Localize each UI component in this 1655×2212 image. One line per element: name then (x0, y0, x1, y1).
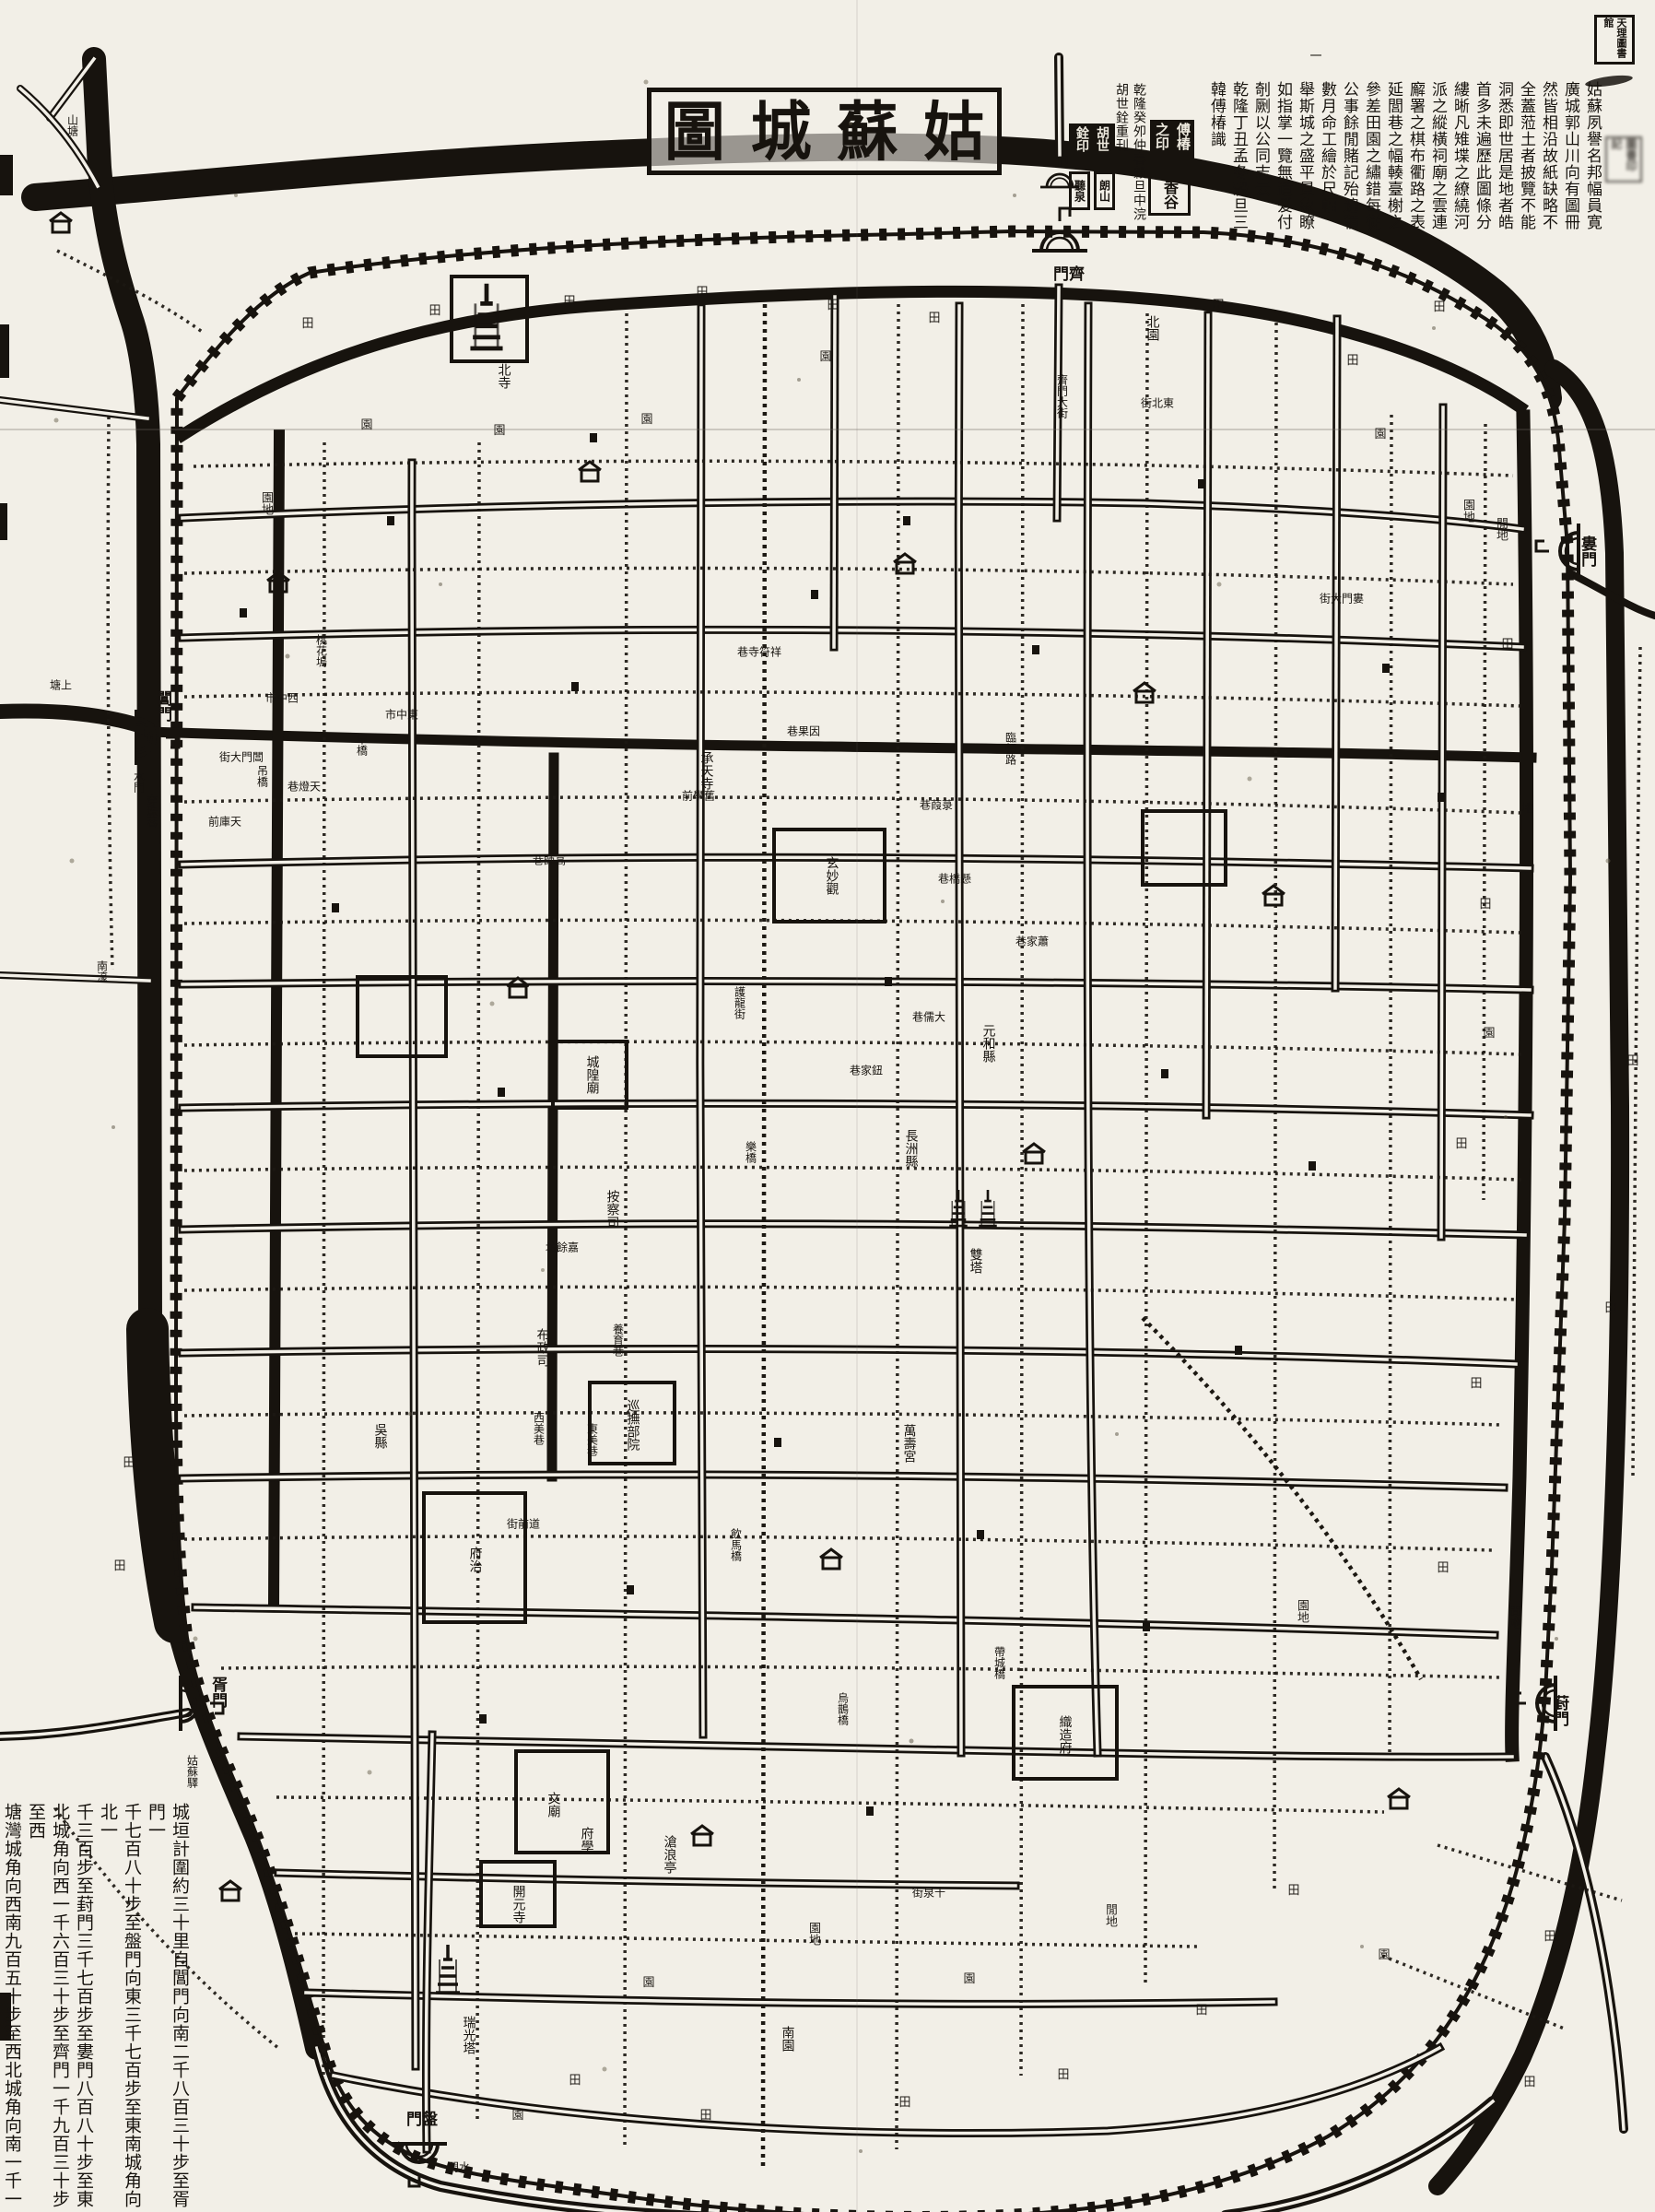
map-label: 元和縣 (980, 1024, 994, 1063)
map-label: 園地 (1461, 499, 1473, 523)
map-label: 吊橋 (256, 765, 268, 787)
map-label: 巷家蕭 (1015, 936, 1049, 948)
preface-column: 公事餘閒賭記殆遍積 (1338, 81, 1360, 258)
map-label: 巷儒大 (912, 1012, 945, 1024)
map-label: 玄妙觀 (824, 856, 838, 895)
map-label: 織造府 (1057, 1715, 1071, 1754)
map-label: 閒地 (1494, 517, 1507, 541)
preface-column: 姑蘇夙譽名邦幅員寛 (1581, 81, 1603, 258)
paper-speckle (0, 0, 2, 2)
map-label: 南濠 (96, 960, 108, 982)
map-label: 田 (1470, 1378, 1482, 1391)
map-label: 養育巷 (612, 1324, 624, 1357)
map-label: 山塘 (66, 114, 78, 136)
blurred-accession-seal: 圖書印記 (1605, 136, 1642, 182)
map-label: 滄浪亭 (662, 1835, 675, 1874)
preface-column: 派之縱橫祠廟之雲連 (1426, 81, 1449, 258)
map-label: 前學舊 (682, 791, 715, 803)
map-label: 護龍街 (734, 986, 745, 1019)
map-label: 塘上 (50, 680, 72, 692)
map-label: 田 (1212, 300, 1224, 312)
map-label: 樂橋 (745, 1141, 757, 1163)
map-label: 田 (898, 2097, 910, 2110)
map-label: 吳縣 (372, 1423, 386, 1449)
preface-column: 乾隆丁丑孟冬穀旦三 (1227, 81, 1250, 258)
map-label: 園 (1378, 1949, 1390, 1962)
map-label: 街大門婁 (1320, 594, 1364, 606)
map-label: 水門 (133, 771, 145, 793)
preface-column: 廨署之棋布衢路之表 (1404, 81, 1426, 258)
map-label: 田 (1195, 2005, 1207, 2018)
title-char: 圖 (664, 100, 725, 163)
map-label: 雙塔 (968, 1248, 981, 1274)
map-label: 瑞光塔 (461, 2016, 475, 2054)
map-label: 布政司 (534, 1328, 548, 1367)
map-label: 田 (563, 296, 575, 309)
preface-column: 剞劂以公同志云 (1250, 81, 1272, 258)
map-label: 市中東 (385, 710, 418, 722)
preface-column: 全蓋蒞土者披覽不能 (1515, 81, 1537, 258)
title-char: 姑 (923, 100, 984, 163)
map-label: 坊餘嘉 (546, 1242, 579, 1254)
map-label: 田 (1455, 1138, 1467, 1151)
measurement-column: 北城角向西一千六百三十步至齊門一千九百三十步至西 (24, 1803, 72, 2212)
map-label: 門齊 (1053, 266, 1085, 283)
map-label: 閶門 (154, 690, 170, 722)
map-label: 臨頓路 (1004, 732, 1016, 765)
preface-column: 洞悉即世居是地者皓 (1493, 81, 1515, 258)
map-label: 園 (1483, 1028, 1495, 1041)
map-label: 田 (1437, 1562, 1449, 1575)
preface-column: 延閭巷之幅輳臺榭之 (1382, 81, 1404, 258)
map-label: 園 (819, 351, 831, 364)
map-label: 一 (1309, 51, 1321, 64)
map-label: 府治 (467, 1547, 481, 1572)
measurement-column: 城垣計圍約三十里自閶門向南二千八百三十步至胥門一 (144, 1803, 192, 2212)
map-label: 長洲縣 (903, 1129, 917, 1168)
map-label: 田 (428, 305, 440, 318)
map-label: 胥門 (209, 1677, 226, 1708)
map-label: 萬壽宮 (901, 1424, 915, 1463)
map-label: 門盤 (406, 2112, 438, 2128)
map-label: 園 (511, 2110, 523, 2123)
map-label: 巷寺符祥 (737, 647, 781, 659)
preface-column: 廣城郭山川向有圖冊 (1559, 81, 1581, 258)
map-label: 巡撫部院 (625, 1399, 639, 1451)
map-label: 門水 (448, 2162, 470, 2174)
map-label: 巷燈天 (288, 782, 321, 794)
map-label: 齊門大街 (1056, 374, 1068, 418)
preface-text: 姑蘇夙譽名邦幅員寛廣城郭山川向有圖冊然皆相沿故紙缺略不全蓋蒞土者披覽不能洞悉即世… (1202, 81, 1603, 258)
map-label: 地 (1521, 803, 1533, 816)
map-label: 園 (963, 1973, 975, 1986)
map-label: 田 (1433, 301, 1445, 314)
measurement-column: 千三百步至葑門三千七百步至婁門八百八十步至東 (72, 1803, 96, 2212)
map-label: 穿珠巷 (146, 794, 158, 828)
publisher-name-seal: 胡世銓印 (1069, 124, 1115, 166)
map-label: 西美巷 (533, 1412, 545, 1445)
measurement-column: 千七百八十步至盤門向東三千七百步至東南城角向北一 (96, 1803, 144, 2212)
map-label: 帶城橋 (993, 1646, 1005, 1679)
map-label: 田 (1346, 355, 1358, 368)
map-label: 園地 (1295, 1599, 1308, 1623)
map-label: 田 (1543, 1931, 1555, 1944)
map-label: 南園 (780, 2026, 793, 2052)
map-label: 閒地 (1507, 1605, 1520, 1629)
title-char: 蘇 (837, 100, 898, 163)
map-label: 田 (1523, 2077, 1535, 2089)
map-label: 城隍廟 (584, 1055, 598, 1094)
map-label: 園 (640, 414, 652, 427)
map-label: 市中西 (265, 693, 299, 705)
map-label: 巷師高 (533, 855, 566, 867)
map-label: 桃花塢 (315, 634, 327, 667)
map-label: 街泉十 (912, 1888, 945, 1900)
map-label: 園 (1374, 429, 1386, 441)
map-label: 烏鵲橋 (837, 1692, 849, 1725)
title-box: 姑 蘇 城 圖 (647, 88, 1002, 175)
preface-column: 首多未遍歷此圖條分 (1471, 81, 1493, 258)
map-label: 田 (1479, 899, 1491, 912)
map-label: 巷家鈕 (850, 1065, 883, 1077)
map-label: 田 (696, 287, 708, 300)
map-label: 田 (1287, 1885, 1299, 1898)
map-label: 田 (928, 312, 940, 325)
map-label: 田 (113, 1560, 125, 1573)
map-label: 按察司 (604, 1190, 618, 1229)
map-label: 街北東 (1141, 398, 1174, 410)
publisher-small-seal: 聽泉 (1069, 171, 1090, 210)
measurement-note: 城垣計圍約三十里自閶門向南二千八百三十步至胥門一千七百八十步至盤門向東三千七百步… (44, 1803, 192, 2212)
map-label: 飲馬橋 (730, 1528, 742, 1561)
map-label: 前庫天 (208, 817, 241, 829)
map-label: 田 (123, 1457, 135, 1470)
library-collection-seal: 天理圖書館 (1594, 15, 1635, 65)
map-label: 北園 (1144, 315, 1158, 341)
map-label: 東美巷 (586, 1423, 598, 1456)
map-label: 田 (1057, 2069, 1069, 2082)
map-label: 府學 (579, 1827, 593, 1853)
map-label: 巷果因 (787, 726, 820, 738)
colophon-column: 乾隆癸夘仲春穀旦中浣 (1130, 83, 1147, 247)
preface-column: 然皆相沿故紙缺略不 (1537, 81, 1559, 258)
preface-column: 如指掌一覽無遺爰付 (1272, 81, 1294, 258)
map-label: 巷葭菉 (920, 800, 953, 812)
author-name-seal: 傅椿之印 (1150, 120, 1194, 166)
map-label: 文廟 (546, 1792, 559, 1818)
map-label: 園 (642, 1977, 654, 1990)
map-label: 承天寺 (698, 751, 712, 790)
map-label: 田 (827, 300, 839, 312)
publisher-small-seal: 朗山 (1094, 171, 1115, 210)
preface-column: 縷晰凡雉堞之繚繞河 (1449, 81, 1471, 258)
preface-column: 韓傅椿識 (1205, 81, 1227, 258)
map-label: 巷橋懸 (938, 874, 971, 886)
preface-column: 數月命工繪於尺幅 (1316, 81, 1338, 258)
author-style-seal: 香谷 (1148, 173, 1191, 216)
map-label: 北寺 (496, 363, 510, 389)
map-label: 婁門 (1579, 535, 1595, 567)
preface-column: 參差田園之繡錯每従 (1360, 81, 1382, 258)
map-label: 姑蘇驛 (186, 1755, 198, 1788)
map-label: 田 (1604, 1302, 1616, 1315)
map-label: 閒地 (1103, 1903, 1116, 1927)
map-sheet: 門齊婁門葑門門盤胥門閶門水門門水北寺玄妙觀府治吳縣長洲縣元和縣巡撫部院布政司按察… (0, 0, 1655, 2212)
map-label: 田 (1501, 639, 1513, 652)
preface-column: 舉斯城之盛平景象瞭 (1294, 81, 1316, 258)
title-char: 城 (751, 100, 812, 163)
map-label: 街大門閶 (219, 752, 264, 764)
map-label: 園地 (806, 1922, 819, 1946)
map-label: 街前道 (507, 1519, 540, 1531)
map-label: 田 (301, 318, 313, 331)
map-label: 葑門 (1551, 1695, 1567, 1726)
map-label: 田 (569, 2075, 581, 2088)
map-labels-layer: 門齊婁門葑門門盤胥門閶門水門門水北寺玄妙觀府治吳縣長洲縣元和縣巡撫部院布政司按察… (0, 0, 1655, 2212)
map-label: 園 (493, 425, 505, 438)
map-label: 田 (1626, 1055, 1638, 1068)
map-label: 園 (360, 419, 372, 432)
measurement-column: 塘灣城角向西南九百五十步至西北城角向南一千一百步 (0, 1803, 24, 2212)
map-label: 開元寺 (511, 1885, 524, 1924)
map-label: 皋橋 (356, 734, 368, 756)
map-label: 園地 (259, 491, 272, 515)
map-label: 田 (699, 2110, 711, 2123)
